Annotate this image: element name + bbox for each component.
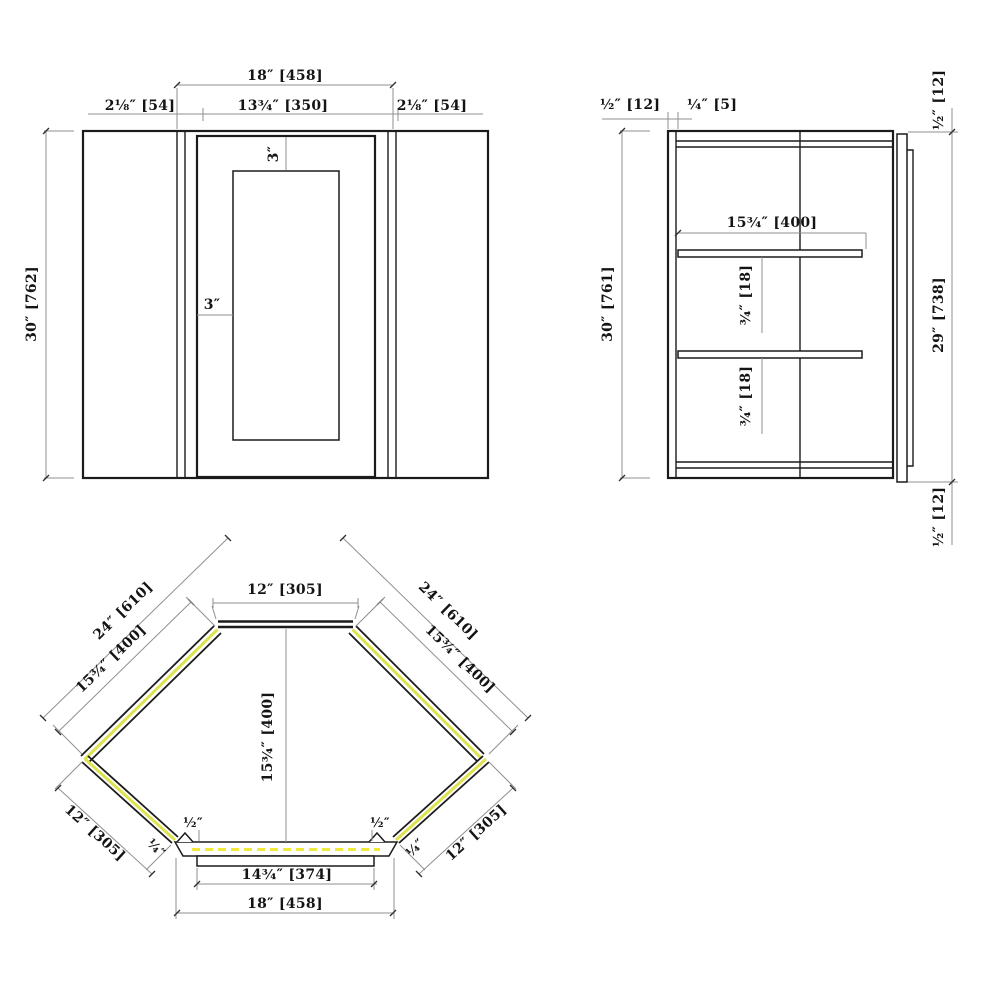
- dim-return-right-label: ¼″: [403, 836, 428, 861]
- door-section: [897, 134, 907, 482]
- dim-stile-right-label: 2⅛″ [54]: [397, 98, 468, 114]
- dim-door-height-label: 29″ [738]: [931, 277, 947, 353]
- dim-front-width-label: 18″ [458]: [247, 896, 323, 912]
- cabinet-technical-drawing: 18″ [458] 2⅛″ [54] 13¾″ [350] 2⅛″ [54] 3…: [0, 0, 1000, 1000]
- dim-door-width-label: 14¾″ [374]: [242, 867, 333, 883]
- plan-view: 12″ [305] 15¾″ [400] 24″ [610] 15¾″ [400…: [40, 535, 531, 919]
- door-recessed-panel: [233, 171, 339, 440]
- dim-side-height-label: 30″ [761]: [600, 266, 616, 342]
- dim-reveal-side-label: 3″: [204, 297, 221, 313]
- back-wall-edge: [218, 622, 353, 628]
- dim-door-width-label: 13¾″ [350]: [238, 98, 329, 114]
- dim-shelf-thickness-upper-label: ¾″ [18]: [738, 265, 754, 326]
- stile-notch-right: [369, 833, 385, 842]
- door-edge-profile: [907, 150, 913, 466]
- dim-side-left-label: 12″ [305]: [61, 802, 128, 865]
- dim-return-left-label: ¼″: [143, 836, 168, 861]
- dim-stile-left-label: 2⅛″ [54]: [105, 98, 176, 114]
- dim-back-thickness-label: ½″ [12]: [600, 97, 661, 113]
- dim-interior-depth-label: 15¾″ [400]: [260, 692, 276, 783]
- side-carcass: [668, 131, 893, 478]
- side-section-view: ½″ [12] ¼″ [5] 30″ [761] 15¾″ [400] ¾″ […: [600, 70, 958, 548]
- stile-notch-left: [177, 833, 193, 842]
- diagonal-panel-upper-left: [81, 626, 221, 763]
- front-elevation-view: 18″ [458] 2⅛″ [54] 13¾″ [350] 2⅛″ [54] 3…: [24, 68, 488, 481]
- shelf-lower: [678, 351, 862, 358]
- dim-height-label: 30″ [762]: [24, 266, 40, 342]
- shelf-upper: [678, 250, 862, 257]
- dim-door-top-reveal-label: ½″ [12]: [931, 70, 947, 131]
- drawing-canvas: 18″ [458] 2⅛″ [54] 13¾″ [350] 2⅛″ [54] 3…: [0, 0, 1000, 1000]
- dim-shelf-depth-label: 15¾″ [400]: [727, 215, 818, 231]
- diagonal-panel-upper-right: [349, 626, 484, 761]
- dim-overall-width-label: 18″ [458]: [247, 68, 323, 84]
- dim-back-width-label: 12″ [305]: [247, 582, 323, 598]
- dim-side-right-label: 12″ [305]: [443, 802, 510, 865]
- dim-door-bottom-reveal-label: ½″ [12]: [931, 487, 947, 548]
- dim-shelf-thickness-lower-label: ¾″ [18]: [738, 366, 754, 427]
- dim-stile-left-label: ½″: [183, 816, 203, 831]
- dim-stile-right-label: ½″: [370, 816, 390, 831]
- dim-hang-rail-label: ¼″ [5]: [687, 97, 738, 113]
- dim-reveal-top-label: 3″: [266, 146, 282, 163]
- door-plan: [197, 856, 374, 866]
